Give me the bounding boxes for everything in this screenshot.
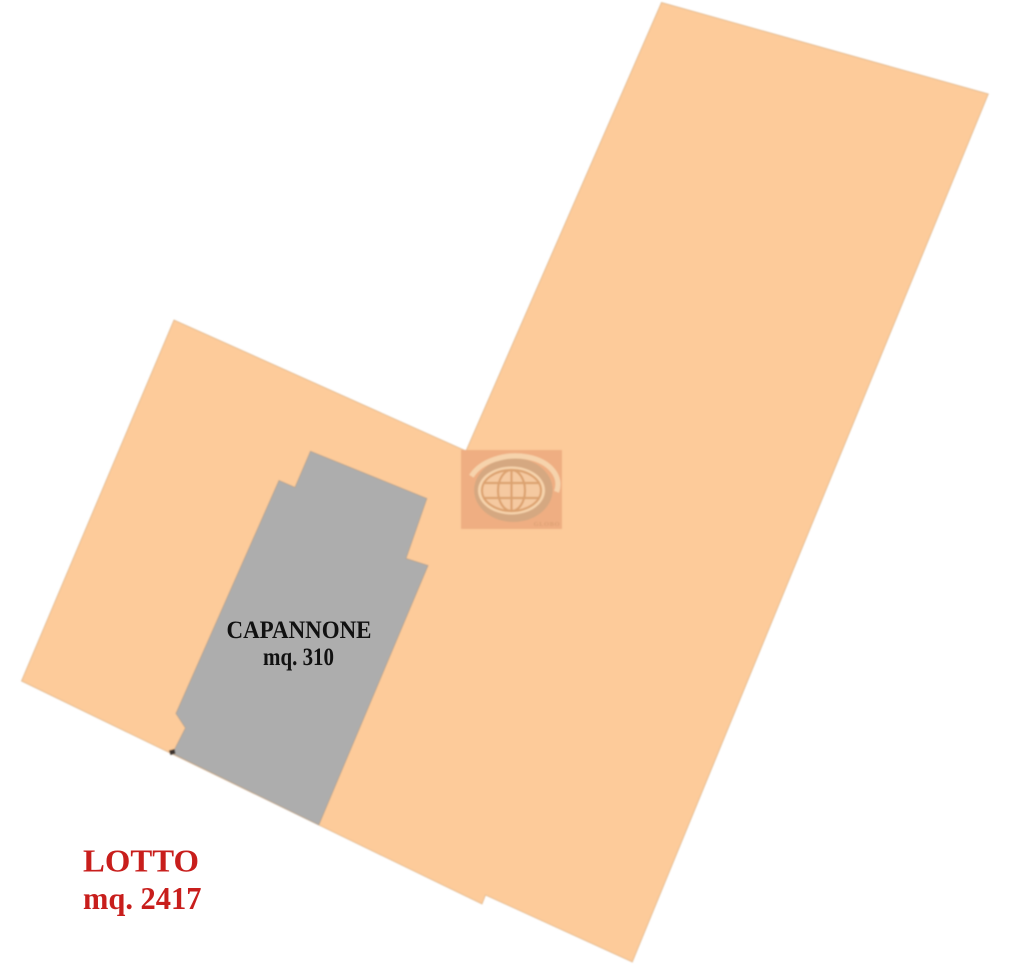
- svg-text:CAPANNONE: CAPANNONE: [227, 615, 372, 644]
- svg-text:GLOBO: GLOBO: [534, 521, 560, 528]
- svg-text:LOTTO: LOTTO: [83, 843, 199, 879]
- svg-text:mq. 310: mq. 310: [263, 644, 334, 671]
- svg-text:mq. 2417: mq. 2417: [83, 880, 202, 916]
